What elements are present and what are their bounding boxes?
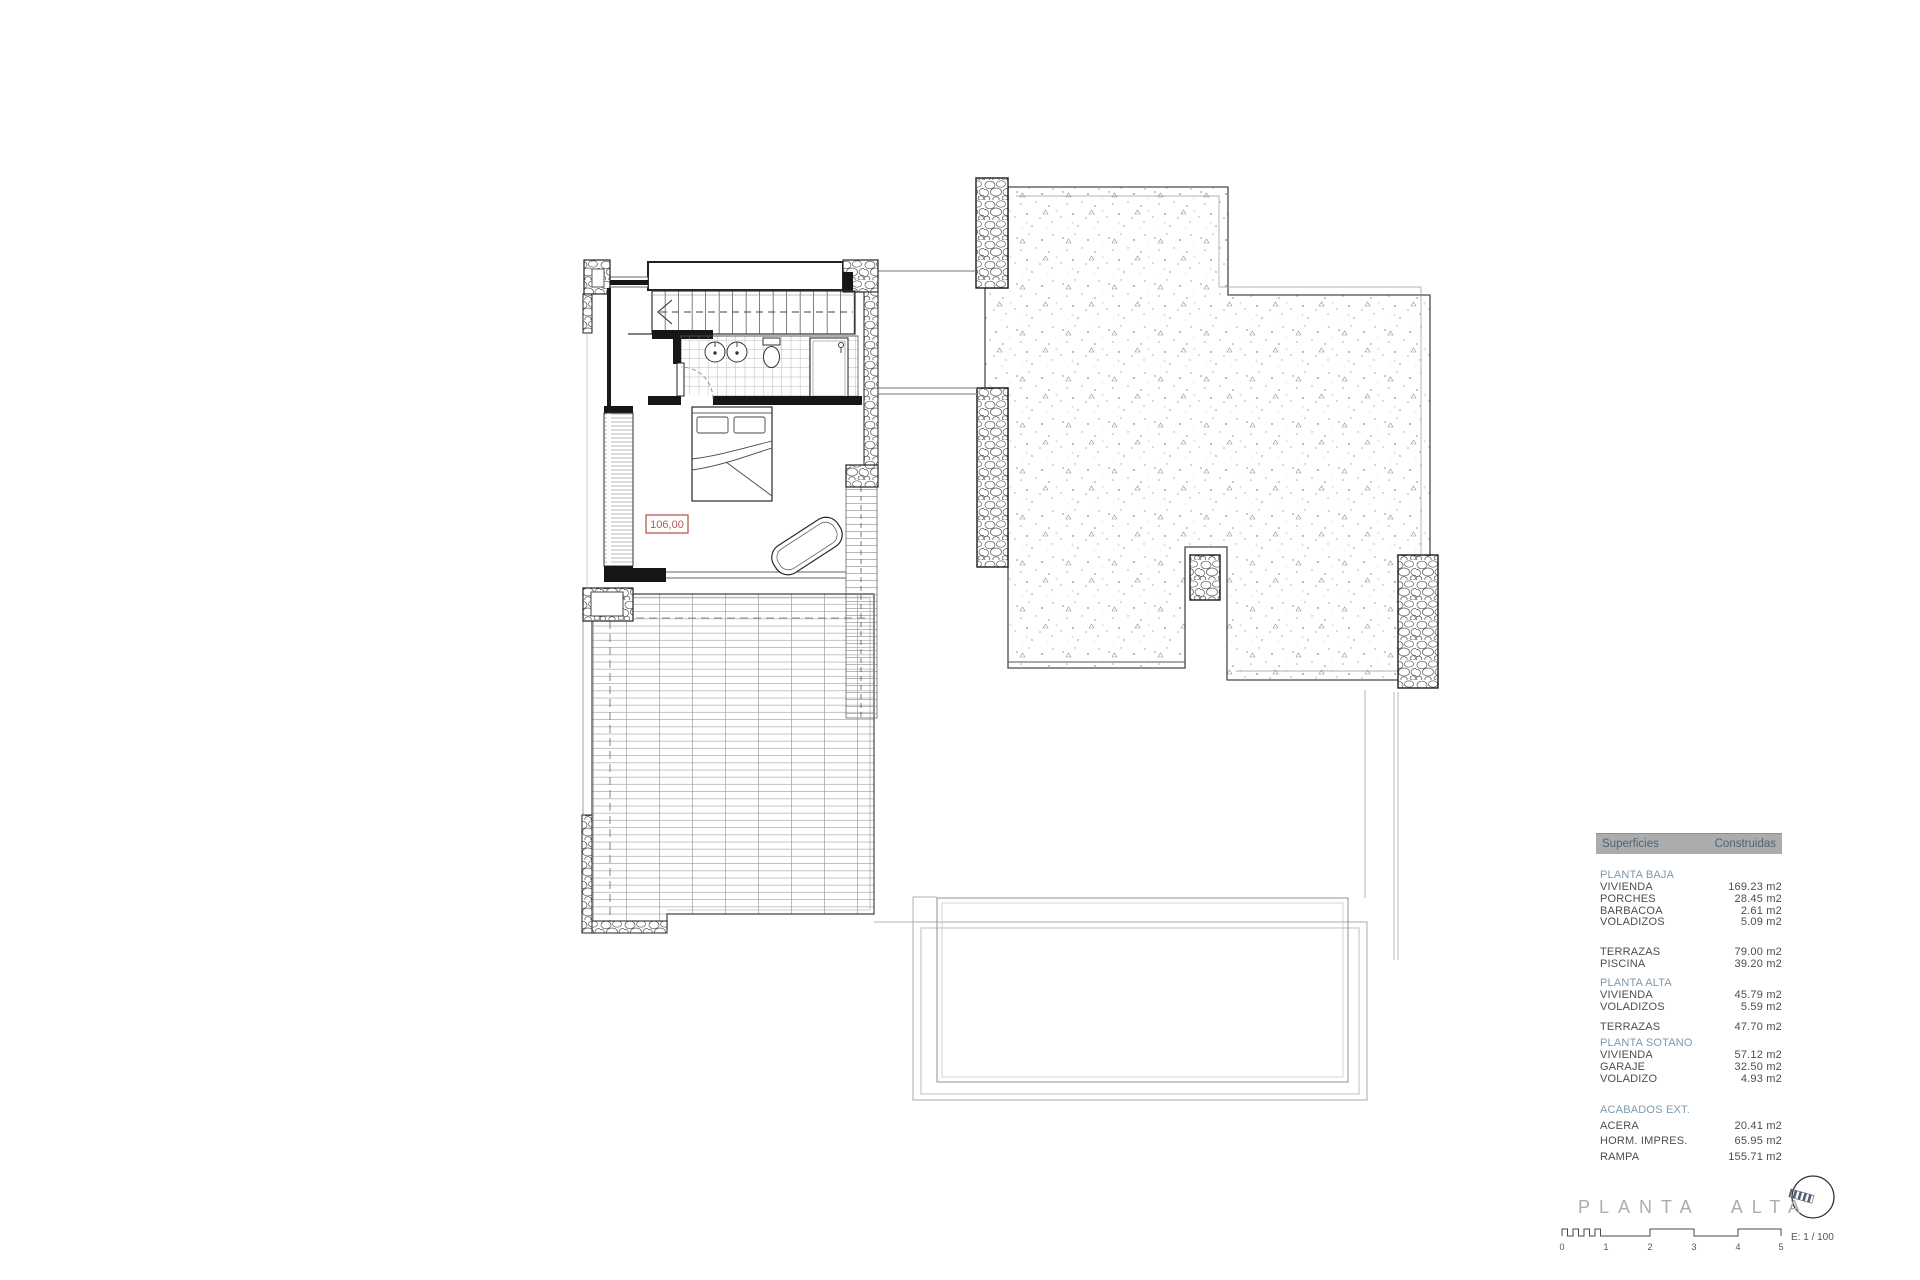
landing — [648, 262, 843, 290]
table-row: VOLADIZO4.93 m2 — [1600, 1074, 1782, 1086]
row-value: 20.41 m2 — [1735, 1121, 1782, 1133]
table-header-col1: Superficies — [1602, 838, 1659, 850]
surface-areas-table: Superficies Construidas PLANTA BAJAVIVIE… — [1596, 833, 1782, 1164]
row-label: VOLADIZOS — [1600, 917, 1665, 929]
row-label: VOLADIZOS — [1600, 1002, 1665, 1014]
table-row: HORM. IMPRES.65.95 m2 — [1600, 1136, 1782, 1148]
row-value: 5.59 m2 — [1741, 1002, 1782, 1014]
deck-terrace — [583, 594, 874, 929]
louver-window — [604, 406, 633, 573]
table-row: VIVIENDA45.79 m2 — [1600, 990, 1782, 1002]
level-value: 106,00 — [650, 519, 684, 531]
bed — [692, 407, 772, 501]
row-label: ACERA — [1600, 1121, 1639, 1133]
row-label: PISCINA — [1600, 959, 1645, 971]
scale-tick: 5 — [1778, 1242, 1783, 1252]
table-header-col2: Construidas — [1715, 838, 1776, 850]
row-label: PLANTA ALTA — [1600, 977, 1672, 990]
porch-edge-lines — [878, 271, 977, 394]
table-gap — [1600, 1086, 1782, 1104]
floorplan-sheet: { "title": "PLANTA ALTA", "plan": { "roo… — [0, 0, 1920, 1280]
shower — [810, 338, 848, 399]
table-header: Superficies Construidas — [1596, 833, 1782, 854]
bathroom — [648, 336, 862, 406]
scale-tick: 1 — [1603, 1242, 1608, 1252]
row-label: PORCHES — [1600, 894, 1656, 906]
row-label: HORM. IMPRES. — [1600, 1136, 1688, 1148]
scale-ratio-label: E: 1 / 100 — [1791, 1232, 1834, 1243]
row-label: VIVIENDA — [1600, 990, 1653, 1002]
staircase — [628, 291, 858, 339]
graphic-scale-bar: 0 1 2 3 4 5 E: 1 / 100 — [1559, 1229, 1834, 1252]
bathtub — [766, 512, 847, 580]
pool-outline — [874, 690, 1398, 1100]
row-value: 47.70 m2 — [1735, 1022, 1782, 1034]
row-value: 4.93 m2 — [1741, 1074, 1782, 1086]
row-value: 32.50 m2 — [1735, 1062, 1782, 1074]
scale-tick: 0 — [1559, 1242, 1564, 1252]
row-value: 5.09 m2 — [1741, 917, 1782, 929]
table-row: GARAJE32.50 m2 — [1600, 1062, 1782, 1074]
row-label: TERRAZAS — [1600, 1022, 1660, 1034]
scale-tick: 2 — [1647, 1242, 1652, 1252]
row-value: 45.79 m2 — [1735, 990, 1782, 1002]
row-label: VOLADIZO — [1600, 1074, 1657, 1086]
table-body: PLANTA BAJAVIVIENDA169.23 m2PORCHES28.45… — [1596, 869, 1782, 1164]
table-row: ACERA20.41 m2 — [1600, 1121, 1782, 1133]
door-leaf — [677, 363, 684, 396]
table-section-row: PLANTA ALTA — [1600, 977, 1782, 990]
toilet — [763, 338, 780, 368]
terrace-concrete-area — [985, 187, 1430, 680]
scale-tick: 3 — [1691, 1242, 1696, 1252]
table-gap — [1600, 929, 1782, 947]
row-label: RAMPA — [1600, 1152, 1639, 1164]
table-row: VOLADIZOS5.09 m2 — [1600, 917, 1782, 929]
table-row: PORCHES28.45 m2 — [1600, 894, 1782, 906]
row-label: ACABADOS EXT. — [1600, 1104, 1690, 1117]
row-value: 155.71 m2 — [1728, 1152, 1782, 1164]
table-row: PISCINA39.20 m2 — [1600, 959, 1782, 971]
table-row: RAMPA155.71 m2 — [1600, 1152, 1782, 1164]
exterior-stair-strip — [846, 487, 877, 718]
table-section-row: ACABADOS EXT. — [1600, 1104, 1782, 1117]
level-annotation: 106,00 — [646, 515, 688, 533]
page-title: PLANTA ALTA — [1578, 1197, 1809, 1218]
table-row: TERRAZAS47.70 m2 — [1600, 1022, 1782, 1034]
row-value: 28.45 m2 — [1735, 894, 1782, 906]
scale-tick: 4 — [1735, 1242, 1740, 1252]
row-label: GARAJE — [1600, 1062, 1645, 1074]
row-value: 39.20 m2 — [1735, 959, 1782, 971]
table-row: VOLADIZOS5.59 m2 — [1600, 1002, 1782, 1014]
row-value: 65.95 m2 — [1735, 1136, 1782, 1148]
